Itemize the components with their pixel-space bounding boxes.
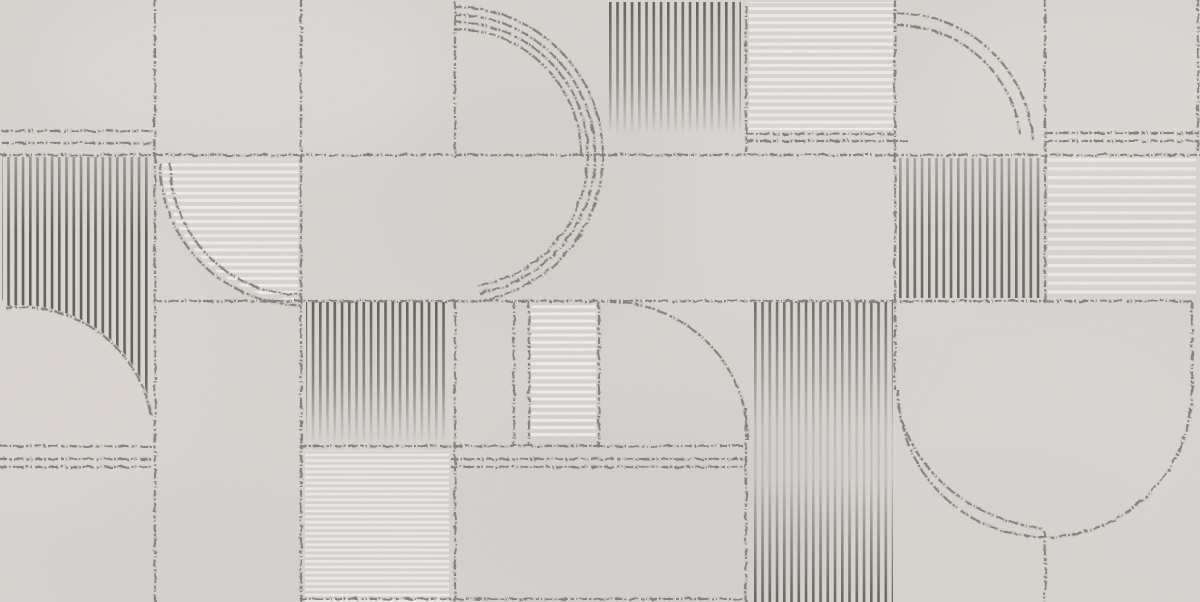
grain-overlay [0, 0, 1200, 602]
tile-pattern-artwork [0, 0, 1200, 602]
tile-pattern-svg [0, 0, 1200, 602]
